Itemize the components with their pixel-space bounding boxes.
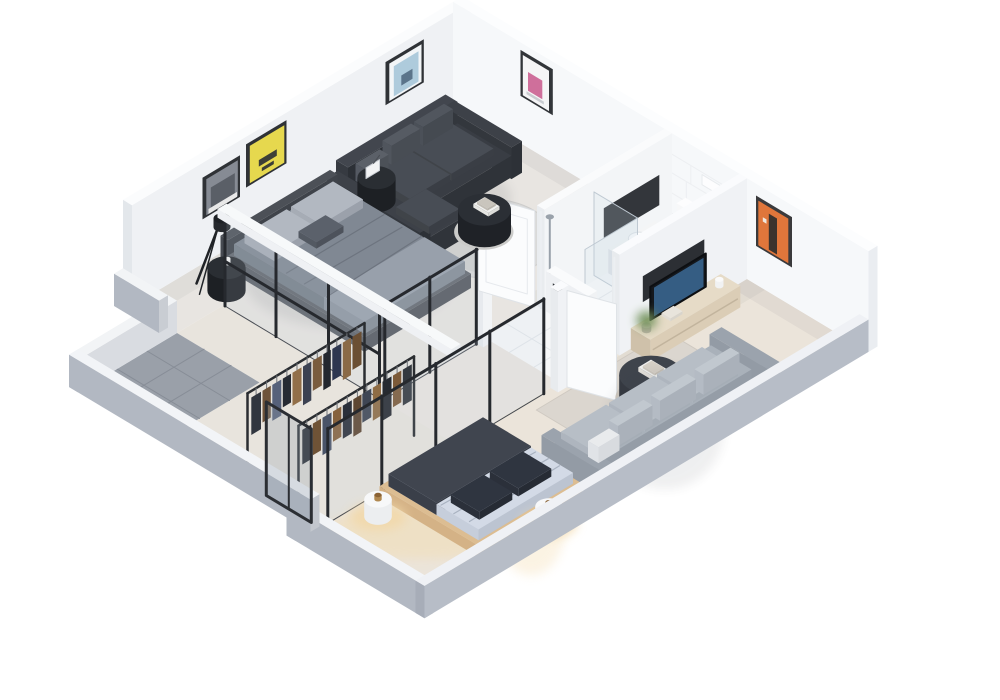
hallway-door <box>567 291 617 401</box>
floorplan-scene <box>0 0 1000 700</box>
shower-head <box>546 214 554 219</box>
garment <box>332 344 341 381</box>
app <box>0 0 1000 700</box>
wall-post <box>551 287 559 392</box>
sofa-dark-arm <box>512 141 523 179</box>
garment <box>293 367 302 406</box>
garment <box>313 355 322 391</box>
garment <box>353 331 362 370</box>
garment <box>343 338 351 380</box>
art-orange-figure <box>769 214 777 255</box>
garment <box>303 362 311 406</box>
vase <box>715 277 723 282</box>
garment <box>323 350 331 391</box>
garment <box>283 374 291 408</box>
wall-low-right <box>416 581 425 619</box>
wall-back-right <box>869 246 878 352</box>
candle <box>374 493 381 497</box>
plant <box>637 311 657 329</box>
garment <box>313 419 321 456</box>
wall-low-front-left <box>159 295 168 333</box>
garment <box>251 392 261 435</box>
floorplan-3d-render <box>0 0 1000 700</box>
